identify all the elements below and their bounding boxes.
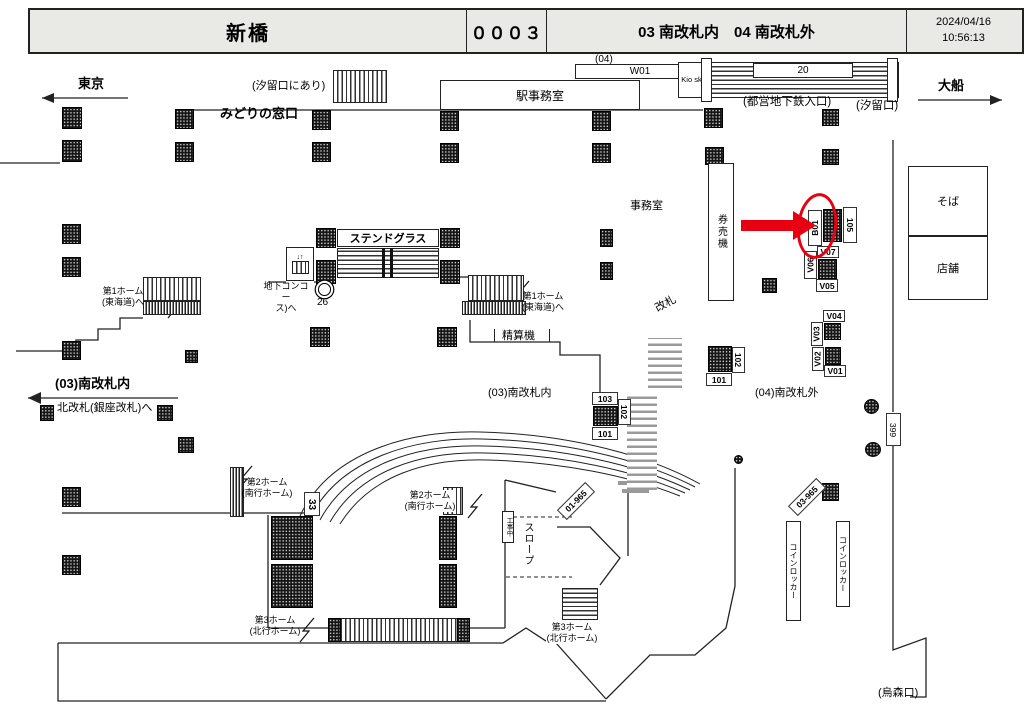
ticket-gates [648,338,682,388]
escalator-strip [271,516,313,560]
escalator-strip [439,516,457,560]
coin-lockers-right: コインロッカー [836,521,850,607]
shop-tenpo: 店舗 [908,236,988,300]
midori-no-madoguchi: みどりの窓口 [220,106,298,122]
pillar [592,111,611,131]
pillar [437,327,457,347]
escalator-platform1-center [462,301,526,315]
pillar [708,346,732,372]
board-102: 102 [618,399,631,425]
board-399: 399 [886,413,901,446]
escalator-platform1-left [143,301,201,315]
pillar [593,406,618,426]
pillar [822,109,839,126]
pillar [440,111,459,131]
stained-glass-divider [390,248,393,278]
karasumori-exit: (烏森口) [878,687,918,700]
pillar [310,327,330,347]
pillar [157,405,173,421]
office-label: 事務室 [630,200,663,213]
platform2-left-label: 第2ホーム (南行ホーム) [241,477,293,499]
pillar [600,262,613,280]
pillar [178,437,194,453]
pillar [592,143,611,163]
pillar [62,107,82,129]
shiodome-exit: (汐留口) [856,100,898,114]
stairs-20-cap-right [887,58,898,102]
pillar [175,142,194,162]
inside-south-gate-left: (03)南改札内 [55,376,130,392]
pillar [818,259,837,279]
pillar [825,347,841,365]
platform3-right-label: 第3ホーム (北行ホーム) [546,622,598,644]
round-pillar [864,399,879,414]
board-102-gate: 102 [732,347,745,373]
stairs-platform1-center [468,275,524,301]
stairs-20-cap-left [701,58,712,102]
pillar [312,110,331,130]
point-26: 26 [317,297,328,309]
stairs-cap [457,618,470,642]
pillar [440,228,460,248]
coin-lockers-left: コインロッカー [786,521,801,621]
station-office: 駅事務室 [440,80,640,110]
pillar [440,260,460,284]
slope-label: スロープ [521,522,533,568]
pillar [62,140,82,162]
escalator-strip [439,564,457,608]
platform1-left-label: 第1ホーム (東海道)へ [100,286,146,308]
stairs-20-number: 20 [753,63,853,78]
stairs-platform3-long [328,618,470,642]
pillar [316,260,336,284]
board-105: 105 [843,207,857,243]
fare-adjustment-machine: 精算機 [502,330,535,343]
station-map-page: 新橋 ０００３ 03 南改札内 04 南改札外 2024/04/16 10:56… [0,0,1024,724]
pillar [824,323,841,340]
pillar [704,108,723,128]
elevator-arrows: ↓↑ [297,254,304,261]
pillar [822,149,839,165]
stairs-icon-shiodome [333,70,387,103]
stained-glass-panel [337,248,439,278]
pillar [440,143,459,163]
pillar [62,555,81,575]
stained-glass-divider [382,248,385,278]
inside-south-gate-center: (03)南改札内 [488,387,552,400]
pillar [62,341,81,360]
platform2-right-label: 第2ホーム (南行ホーム) [404,490,456,512]
elevator-steps-glyph [292,261,309,274]
pillar [62,487,81,507]
escalator-strip [271,564,313,608]
round-pillar [865,442,881,457]
pillar [600,229,613,247]
stairs-below-gates [627,392,657,490]
pillar [316,228,336,248]
shop-soba: そば [908,166,988,236]
stairs-33-label: 33 [304,492,320,516]
direction-ofuna: 大船 [938,78,964,94]
board-101-gate: 101 [706,373,732,386]
platform3-left-label: 第3ホーム (北行ホーム) [249,615,301,637]
stairs-platform3-right [562,588,598,620]
ticket-vending-machines: 券売機 [708,163,734,301]
pillar [175,109,194,129]
board-v02: V02 [812,347,824,371]
board-103: 103 [592,392,618,405]
pillar [185,350,198,363]
board-v01: V01 [824,365,846,377]
stained-glass-label: ステンドグラス [337,229,439,247]
board-101: 101 [592,427,618,440]
stairs-cap [328,618,341,642]
board-v04: V04 [823,310,845,322]
round-pillar [734,455,743,464]
shiodome-note: (汐留口にあり) [252,80,325,93]
outside-south-gate: (04)南改札外 [755,387,819,400]
pillar [62,257,81,277]
toei-subway-entrance: (都営地下鉄入口) [743,96,831,110]
to-underground-concourse: 地下コンコー ス)へ [262,281,310,313]
pillar [40,405,54,421]
construction-label: 工事中 [502,511,514,543]
pillar [62,224,81,244]
tick [549,329,550,342]
pillar [312,142,331,162]
stairs-platform1-left [143,277,201,301]
elevator-icon: ↓↑ [286,247,314,281]
point-26-circle [318,283,331,296]
platform1-center-label: 第1ホーム (東海道)へ [520,291,566,313]
board-v03: V03 [811,322,823,346]
pillar [762,278,777,293]
board-v05: V05 [816,279,838,292]
to-north-gate: 北改札(銀座改札)へ [57,402,152,415]
tick [494,329,495,342]
direction-tokyo: 東京 [78,76,104,92]
